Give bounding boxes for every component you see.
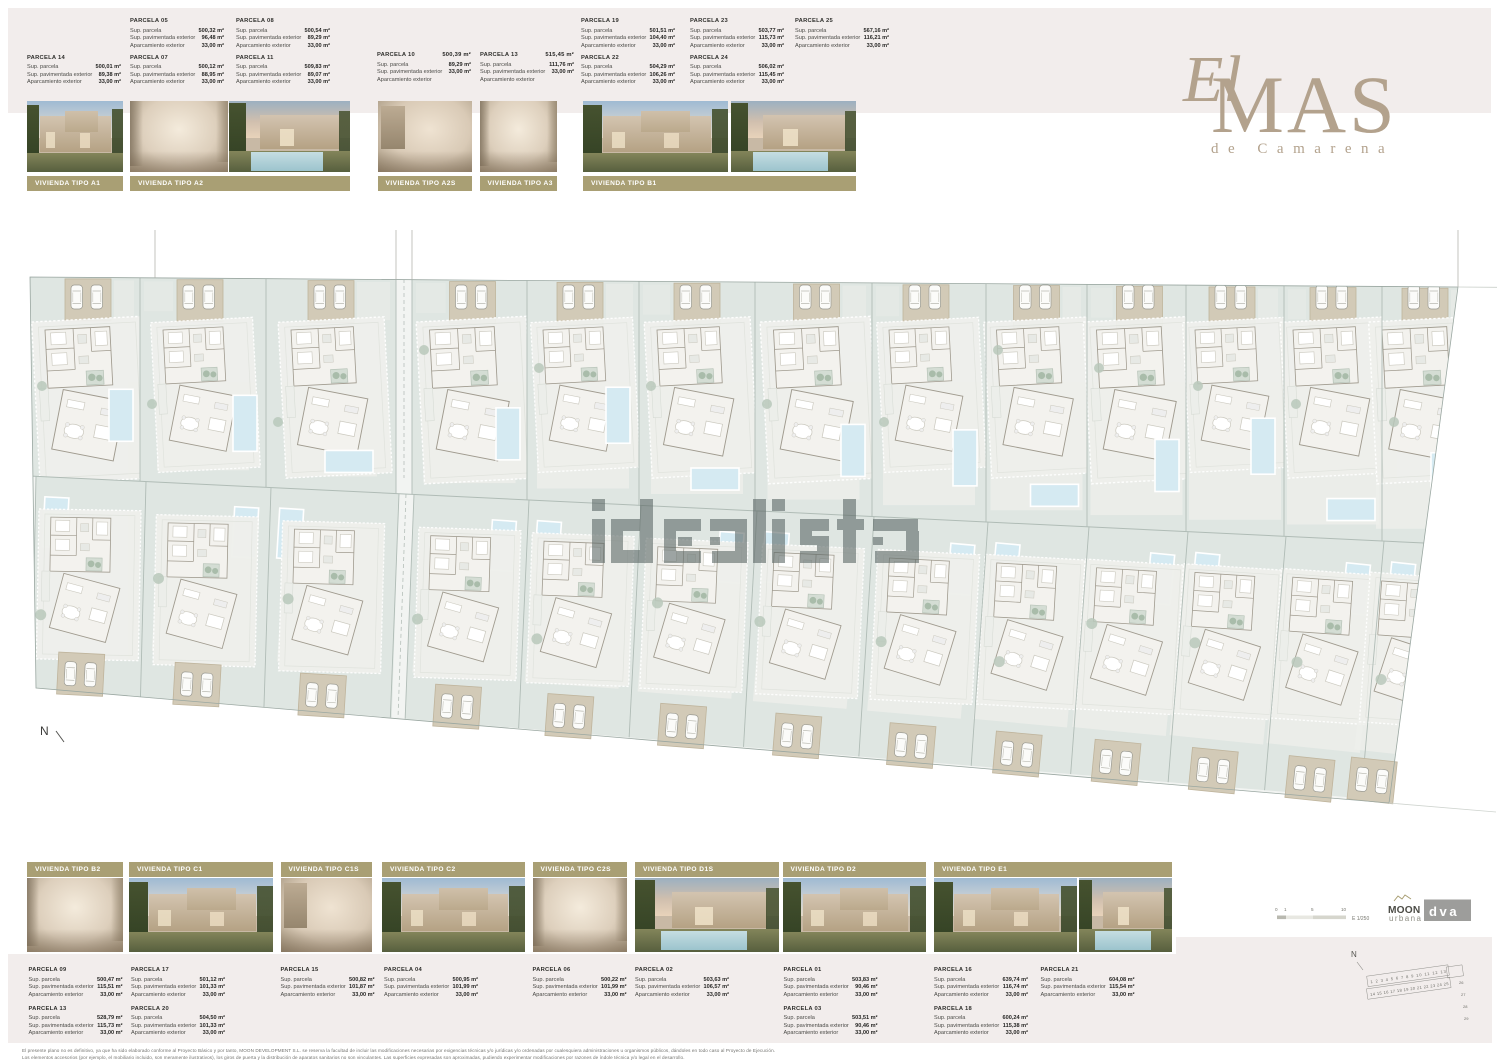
svg-text:E 1/250: E 1/250 [1352,916,1369,922]
svg-text:N: N [1351,950,1357,959]
svg-text:14 15 16 17 18 19 20 21 22 23: 14 15 16 17 18 19 20 21 22 23 24 25 [1370,981,1450,997]
svg-text:urbana: urbana [1389,914,1422,923]
svg-text:5: 5 [1311,907,1314,912]
svg-text:29: 29 [1464,1016,1469,1021]
svg-text:10: 10 [1341,907,1347,912]
svg-text:1: 1 [1284,907,1287,912]
svg-text:27: 27 [1461,992,1466,997]
svg-text:28: 28 [1463,1004,1468,1009]
svg-text:0: 0 [1275,907,1278,912]
svg-text:dva: dva [1429,904,1459,919]
svg-text:26: 26 [1459,980,1464,985]
